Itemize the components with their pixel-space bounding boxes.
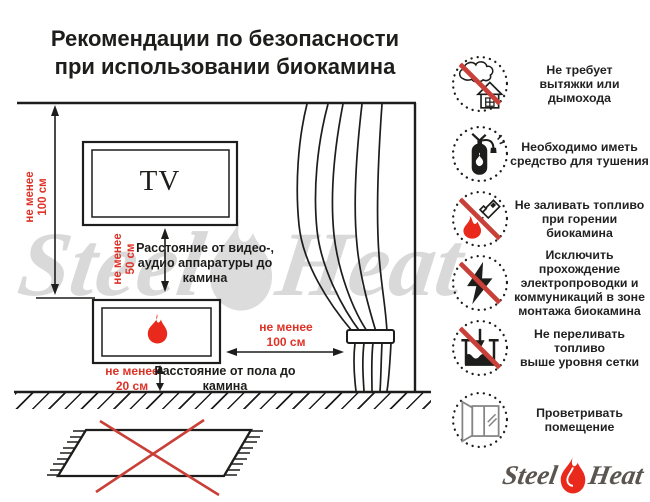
rule-text-no-chimney: Не требует вытяжки или дымохода bbox=[509, 63, 650, 105]
dim-ceiling-to-fireplace: не менее 100 см bbox=[24, 159, 50, 235]
rule-text-no-wiring: Исключить прохождение электропроводки и … bbox=[509, 248, 650, 318]
infographic-page: Steel Heat Рекомендации по безопасности … bbox=[0, 0, 650, 502]
note-floor-distance: Расстояние от пола до камина bbox=[150, 364, 300, 394]
no-overfill-icon bbox=[451, 319, 509, 377]
no-chimney-icon bbox=[451, 55, 509, 113]
rule-row-no-refill: Не заливать топливо при горении биокамин… bbox=[451, 190, 650, 248]
open-window bbox=[462, 402, 498, 441]
rule-row-extinguisher: Необходимо иметь средство для тушения bbox=[451, 125, 650, 183]
rule-text-extinguisher: Необходимо иметь средство для тушения bbox=[509, 140, 650, 168]
dim-fireplace-to-curtain: не менее 100 см bbox=[246, 320, 326, 350]
note-av-distance: Расстояние от видео-, аудио аппаратуры д… bbox=[130, 241, 280, 286]
rule-text-ventilate: Проветривать помещение bbox=[509, 406, 650, 434]
fireplace-box bbox=[93, 300, 220, 363]
steelheat-logo: Steel Heat bbox=[498, 452, 648, 498]
logo-heat-text: Heat bbox=[586, 460, 645, 491]
logo-flame-icon bbox=[556, 454, 590, 496]
extinguisher-icon bbox=[451, 125, 509, 183]
carpet bbox=[47, 420, 263, 495]
curtain-tie bbox=[347, 330, 394, 343]
rule-text-no-refill: Не заливать топливо при горении биокамин… bbox=[509, 198, 650, 240]
rule-row-ventilate: Проветривать помещение bbox=[451, 391, 650, 449]
no-refill-while-burning-icon bbox=[451, 190, 509, 248]
rule-text-no-overfill: Не переливать топливо выше уровня сетки bbox=[509, 327, 650, 369]
no-wiring-icon bbox=[451, 254, 509, 312]
logo-steel-text: Steel bbox=[500, 460, 559, 491]
rule-row-no-chimney: Не требует вытяжки или дымохода bbox=[451, 55, 650, 113]
extinguisher-body bbox=[472, 134, 505, 175]
rule-row-no-wiring: Исключить прохождение электропроводки и … bbox=[451, 254, 650, 312]
ventilate-icon bbox=[451, 391, 509, 449]
tv-label: TV bbox=[83, 165, 237, 198]
rule-row-no-overfill: Не переливать топливо выше уровня сетки bbox=[451, 319, 650, 377]
